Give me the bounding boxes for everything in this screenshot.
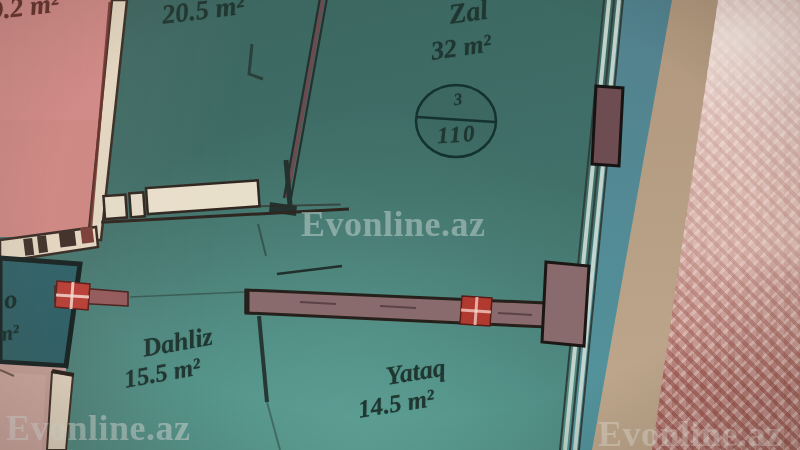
door-leaf-line	[277, 266, 342, 274]
photo-layer: 9.2 m² 20.5 m² Zal 32 m² 3 110 Dahliz 15…	[0, 0, 800, 450]
door-mark	[249, 44, 263, 79]
wall-column-block	[592, 86, 623, 166]
floorplan-photo: 9.2 m² 20.5 m² Zal 32 m² 3 110 Dahliz 15…	[0, 0, 800, 450]
wall-tee-block	[542, 262, 589, 346]
badge-apartment-number: 110	[428, 120, 486, 150]
watermark-bottom-left: Evonline.az	[6, 407, 191, 449]
label-bath-partial-2: m²	[0, 319, 21, 348]
divider-wall-bottom	[259, 316, 280, 450]
left-wall-segment	[55, 281, 244, 310]
label-zal-name: Zal	[447, 0, 490, 31]
watermark-center: Evonline.az	[301, 203, 486, 245]
red-marker-left	[55, 281, 90, 310]
badge-room-count: 3	[437, 88, 479, 112]
red-marker-central	[460, 296, 492, 326]
right-wall	[542, 0, 623, 450]
watermark-bottom-right: Evonline.az	[598, 413, 783, 450]
central-wall	[246, 290, 546, 327]
